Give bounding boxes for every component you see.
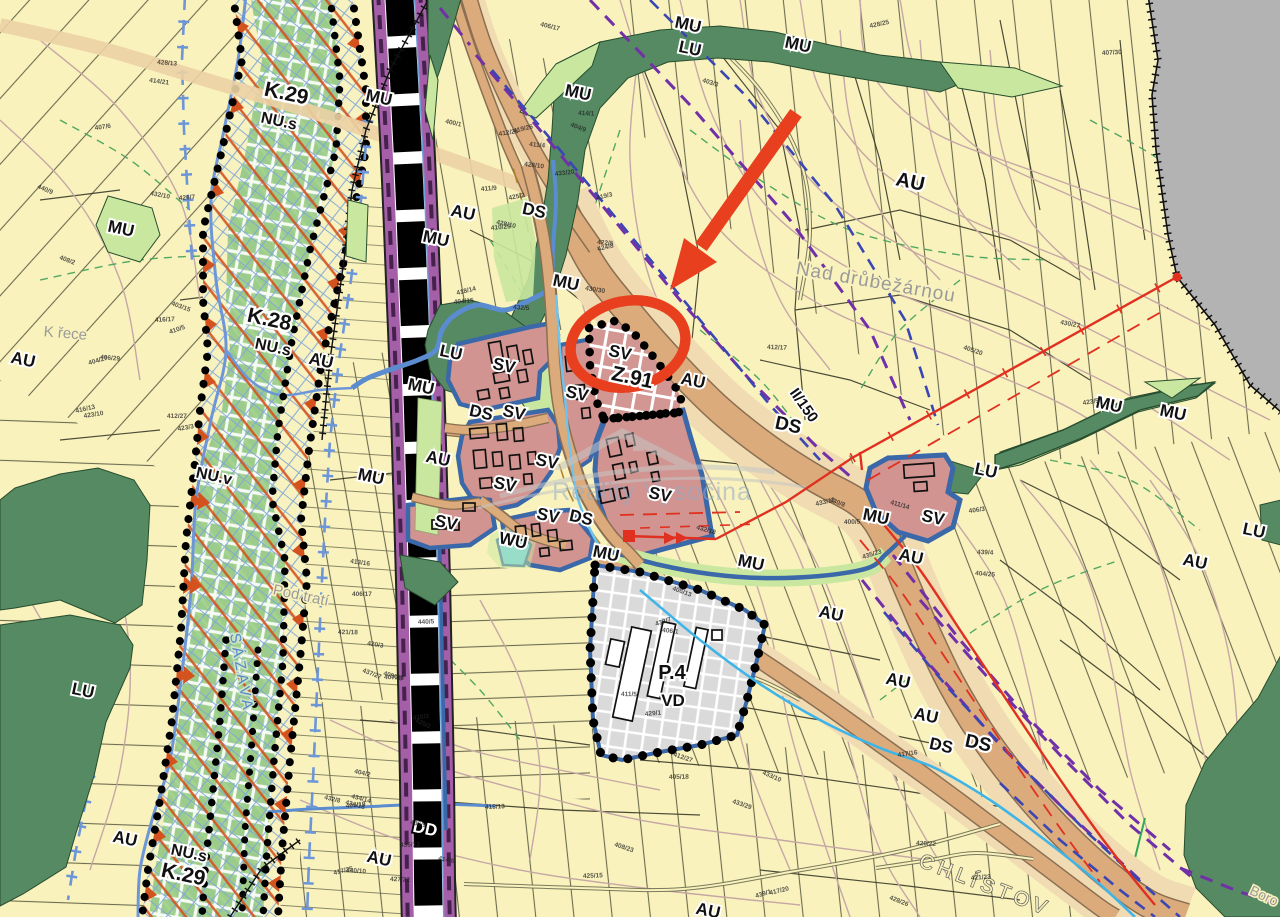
svg-text:420/22: 420/22 — [916, 840, 937, 848]
svg-text:416/17: 416/17 — [155, 316, 176, 324]
svg-text:406/17: 406/17 — [352, 591, 372, 598]
svg-text:411/5: 411/5 — [621, 691, 637, 698]
svg-text:411/9: 411/9 — [481, 185, 498, 193]
svg-text:425/15: 425/15 — [583, 872, 603, 880]
svg-text:435/13: 435/13 — [400, 841, 420, 849]
svg-text:421/23: 421/23 — [971, 874, 992, 882]
svg-text:414/1: 414/1 — [578, 110, 595, 118]
svg-text:429/1: 429/1 — [645, 710, 662, 718]
svg-text:422/5: 422/5 — [597, 239, 614, 247]
svg-text:415/13: 415/13 — [485, 803, 505, 811]
svg-text:421/18: 421/18 — [338, 629, 358, 636]
svg-text:412/27: 412/27 — [167, 413, 187, 420]
svg-text:427/22: 427/22 — [390, 876, 410, 884]
svg-text:439/4: 439/4 — [977, 549, 994, 557]
svg-text:440/5: 440/5 — [418, 618, 435, 626]
svg-text:405/18: 405/18 — [669, 774, 689, 781]
svg-text:426/7: 426/7 — [179, 194, 196, 202]
svg-text:VD: VD — [661, 691, 685, 710]
svg-text:407/30: 407/30 — [1102, 49, 1123, 57]
svg-text:440/10: 440/10 — [346, 867, 367, 875]
svg-text:432/5: 432/5 — [513, 304, 530, 312]
svg-text:412/17: 412/17 — [767, 344, 787, 352]
svg-text:P.4: P.4 — [658, 662, 686, 684]
svg-text:400/5: 400/5 — [844, 519, 861, 526]
